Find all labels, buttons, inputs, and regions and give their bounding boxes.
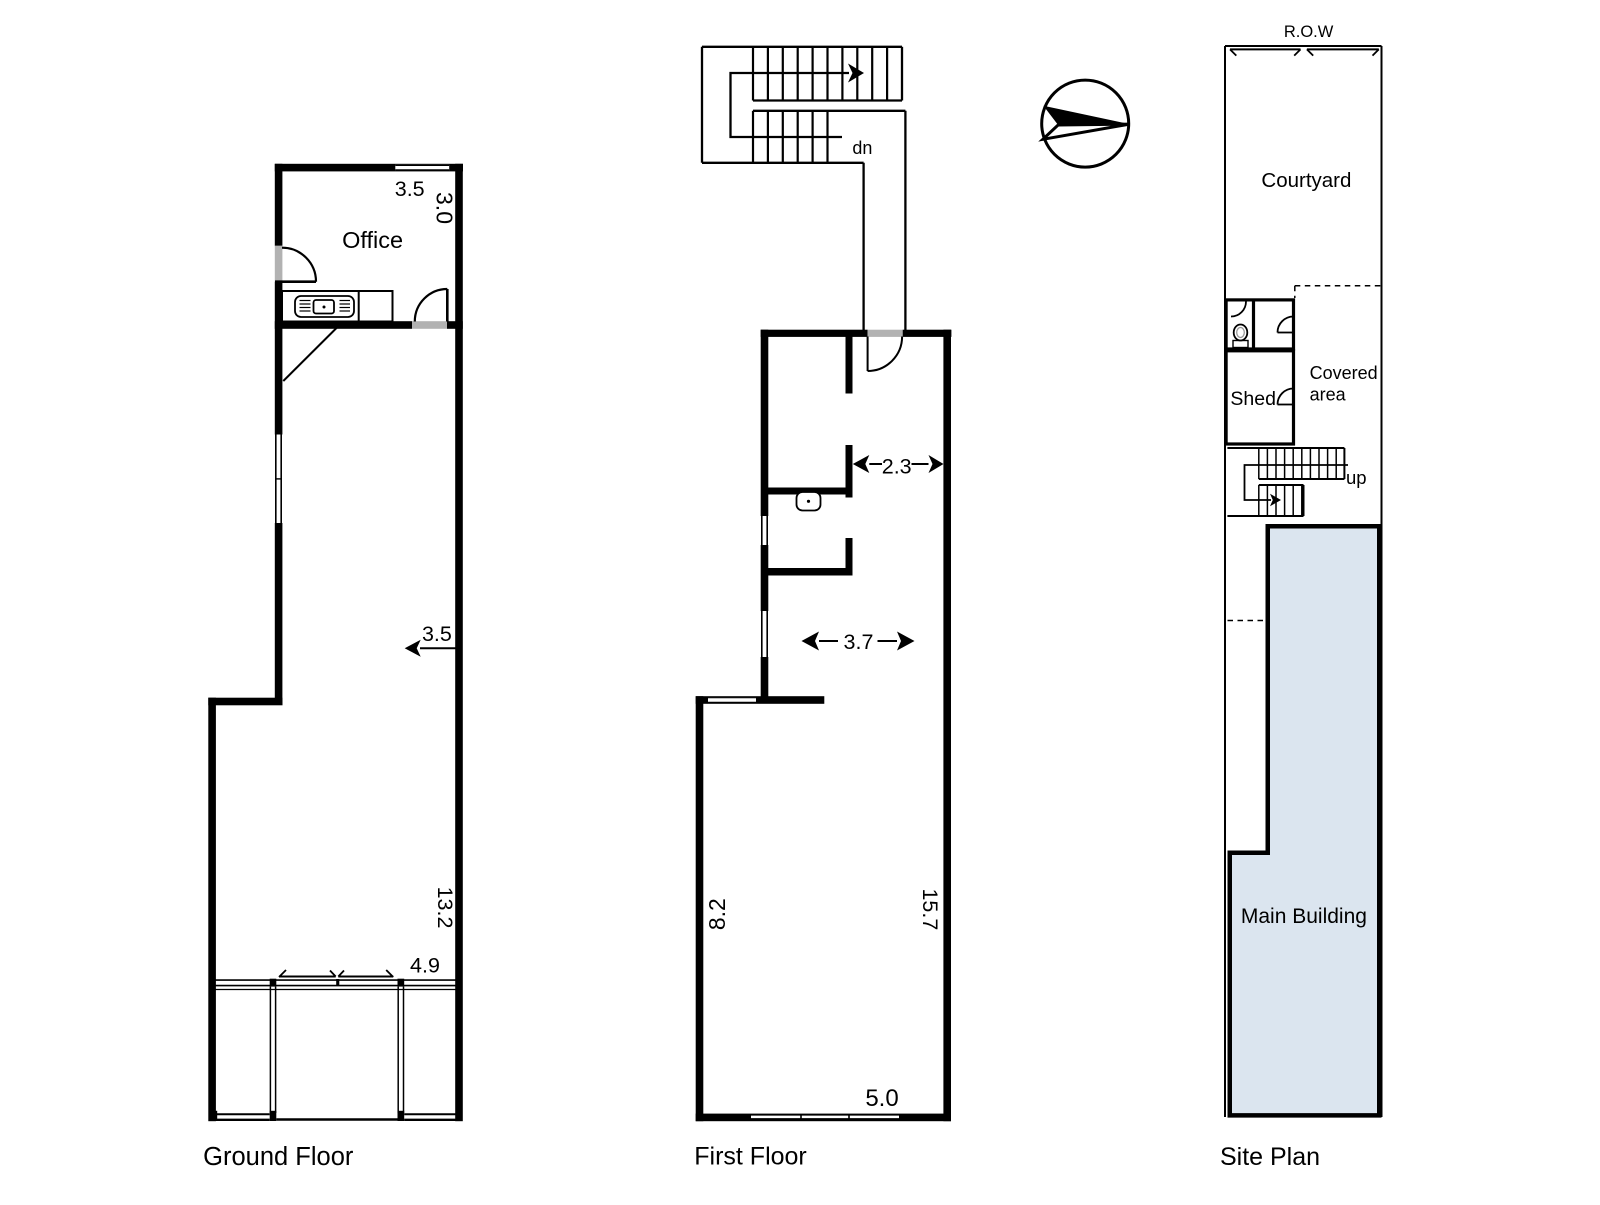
svg-text:2.3: 2.3 [882,455,912,479]
svg-text:Courtyard: Courtyard [1261,169,1351,192]
svg-text:dn: dn [852,138,872,158]
svg-text:First Floor: First Floor [694,1143,807,1171]
svg-text:3.5: 3.5 [422,622,452,646]
svg-text:15.7: 15.7 [918,888,942,930]
svg-text:Ground Floor: Ground Floor [203,1143,354,1171]
svg-text:up: up [1346,467,1367,488]
svg-text:Main Building: Main Building [1241,905,1367,928]
svg-text:4.9: 4.9 [410,954,440,978]
svg-text:3.0: 3.0 [432,192,458,224]
svg-text:Covered: Covered [1310,363,1378,383]
svg-text:Office: Office [342,227,403,253]
svg-text:5.0: 5.0 [865,1085,898,1112]
svg-text:3.5: 3.5 [395,177,425,201]
svg-text:Site Plan: Site Plan [1220,1143,1320,1171]
svg-text:13.2: 13.2 [433,887,457,929]
svg-text:R.O.W: R.O.W [1284,23,1334,41]
svg-text:3.7: 3.7 [844,630,874,654]
svg-text:Shed: Shed [1230,388,1276,410]
svg-text:area: area [1310,385,1347,405]
svg-text:8.2: 8.2 [704,898,730,930]
